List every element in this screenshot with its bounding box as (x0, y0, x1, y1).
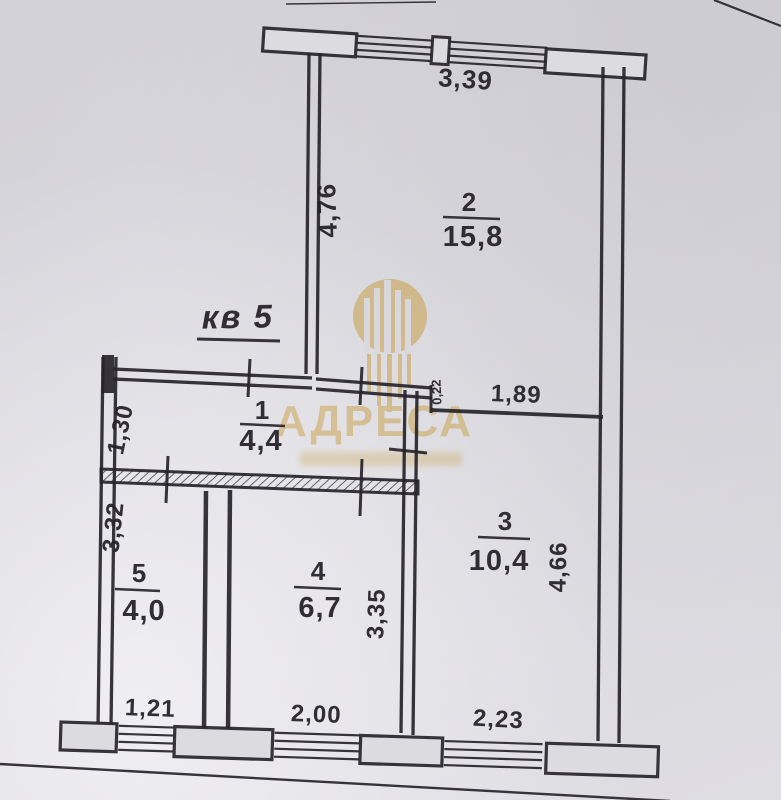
bottom-pier-2 (174, 727, 273, 760)
apartment-title-underline (197, 339, 280, 341)
bottom-window-2-icon (274, 733, 360, 760)
apartment-title: кв 5 (201, 297, 274, 335)
dim-room4-window-width: 2,00 (290, 700, 342, 729)
room-3-number: 3 (498, 506, 512, 536)
room-1-number: 1 (255, 395, 269, 425)
watermark-tagline-blur (300, 452, 462, 466)
dim-room3-top-width: 1,89 (490, 380, 542, 409)
dim-room3-window-width: 2,23 (472, 705, 524, 735)
room-5-underline (115, 589, 160, 591)
door-tick-hall-top-right (360, 367, 362, 405)
door-tick-room4 (360, 459, 362, 516)
dim-room5-window-width: 1,21 (124, 694, 176, 723)
room-3-underline (478, 537, 530, 539)
room-1-area: 4,4 (239, 425, 282, 457)
door-tick-room5 (166, 456, 168, 503)
room-4-underline (294, 587, 341, 589)
room-2-number: 2 (462, 187, 476, 217)
bottom-pier-4 (546, 743, 659, 777)
room-5-number: 5 (132, 558, 146, 588)
dim-room3-right-height: 4,66 (545, 541, 573, 592)
balcony-pier-left (263, 28, 357, 57)
room-4-number: 4 (311, 556, 326, 586)
bottom-window-1-icon (118, 726, 174, 752)
door-tick-hall-top-left (248, 359, 250, 397)
room-5-area: 4,0 (122, 595, 165, 627)
room-2-area: 15,8 (443, 221, 503, 253)
dim-balcony-width: 3,39 (437, 62, 494, 96)
dim-room4-right-height: 3,35 (362, 588, 391, 640)
bottom-window-wall (60, 722, 659, 777)
floorplan-scan: АДРЕСА (0, 0, 781, 800)
dim-room5-left-height: 3,32 (97, 501, 129, 554)
room-4-area: 6,7 (298, 592, 341, 624)
dim-wall-step: 0,22 (429, 379, 445, 405)
room-2-underline (443, 217, 500, 219)
balcony-window-mullion (431, 37, 450, 65)
floorplan-drawing: АДРЕСА (0, 0, 781, 800)
hall-bottom-wall (101, 469, 418, 494)
dim-room2-left-height: 4,76 (311, 183, 343, 239)
room-3-area: 10,4 (469, 545, 529, 577)
dim-hall-entry-height: 1,30 (102, 402, 139, 457)
balcony-pier-right (545, 49, 646, 79)
bottom-window-3-icon (444, 741, 543, 768)
bottom-pier-3 (360, 735, 443, 766)
bottom-pier-1 (60, 722, 117, 752)
